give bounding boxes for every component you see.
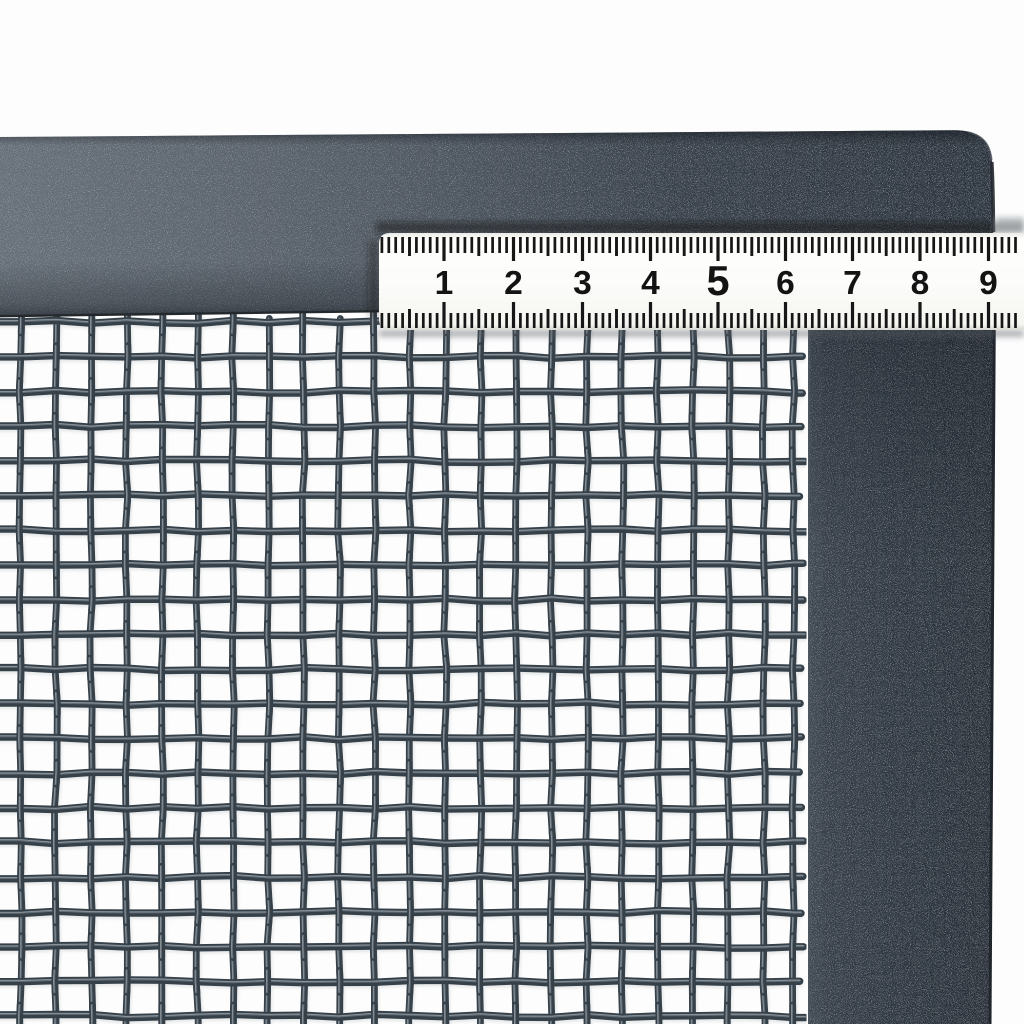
svg-text:7: 7 — [843, 265, 862, 302]
svg-text:5: 5 — [706, 257, 729, 304]
svg-text:8: 8 — [911, 265, 930, 302]
svg-text:2: 2 — [504, 265, 523, 302]
svg-text:3: 3 — [573, 265, 592, 302]
svg-text:1: 1 — [435, 265, 454, 302]
svg-text:4: 4 — [641, 265, 660, 302]
svg-text:6: 6 — [776, 265, 795, 302]
svg-text:9: 9 — [979, 265, 998, 302]
